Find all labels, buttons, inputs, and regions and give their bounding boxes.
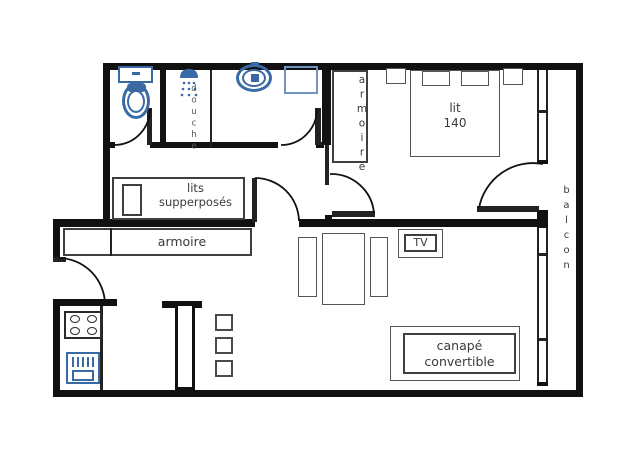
shower-label: douche bbox=[183, 84, 199, 146]
bathroom-door-arc bbox=[281, 109, 317, 145]
balcony-door-arc bbox=[479, 163, 543, 208]
burner-2 bbox=[87, 315, 97, 323]
hall-living-door-arc bbox=[255, 178, 299, 221]
bed-label-line2: 140 bbox=[425, 116, 485, 131]
sink-tap bbox=[251, 62, 259, 67]
toilet-icon bbox=[116, 64, 156, 122]
sofa-label-line2: convertible bbox=[403, 354, 516, 370]
bedroom-wardrobe-label: armoire bbox=[332, 74, 368, 160]
toilet-flush-button bbox=[132, 72, 140, 75]
oven-door bbox=[72, 370, 94, 381]
stove bbox=[64, 311, 102, 339]
chair-right bbox=[370, 237, 388, 297]
entrance-door-arc bbox=[58, 258, 105, 304]
door-arcs bbox=[0, 0, 640, 453]
bathroom-mirror bbox=[284, 66, 318, 94]
bed-label: lit 140 bbox=[425, 101, 485, 131]
sink-icon bbox=[234, 62, 274, 96]
bedroom-door-arc bbox=[330, 174, 374, 213]
shower-screen-line bbox=[210, 70, 212, 147]
bed-label-line1: lit bbox=[425, 101, 485, 116]
balcony-label: balcon bbox=[556, 185, 572, 270]
sink-drain bbox=[251, 74, 259, 82]
pillow-left bbox=[422, 71, 450, 86]
floor-plan: armoire lit 140 lits supperposés armoire… bbox=[0, 0, 640, 453]
bunk-label-line1: lits bbox=[148, 181, 243, 195]
oven-vent-3 bbox=[82, 357, 84, 367]
sofa-label-line1: canapé bbox=[403, 338, 516, 354]
sofa-bed-label: canapé convertible bbox=[403, 338, 516, 370]
toilet-bowl-inner bbox=[127, 90, 145, 113]
nightstand-left bbox=[386, 68, 406, 84]
burner-4 bbox=[87, 327, 97, 335]
chair-left bbox=[298, 237, 317, 297]
bunk-label-line2: supperposés bbox=[148, 195, 243, 209]
stool-3 bbox=[215, 360, 233, 377]
oven-vent-1 bbox=[72, 357, 74, 367]
stool-1 bbox=[215, 314, 233, 331]
hall-wardrobe-label: armoire bbox=[112, 234, 252, 249]
burner-3 bbox=[70, 327, 80, 335]
toilet-seat-band bbox=[127, 83, 146, 92]
oven-vent-2 bbox=[77, 357, 79, 367]
tv-label: TV bbox=[404, 235, 437, 251]
pillow-right bbox=[461, 71, 489, 86]
nightstand-right bbox=[503, 68, 523, 85]
oven-vent-4 bbox=[87, 357, 89, 367]
dining-table bbox=[322, 233, 365, 305]
bunk-beds-label: lits supperposés bbox=[148, 181, 243, 209]
burner-1 bbox=[70, 315, 80, 323]
oven-vent-5 bbox=[92, 357, 94, 367]
bunk-ladder bbox=[122, 184, 142, 216]
oven-icon bbox=[66, 352, 100, 384]
stool-2 bbox=[215, 337, 233, 354]
